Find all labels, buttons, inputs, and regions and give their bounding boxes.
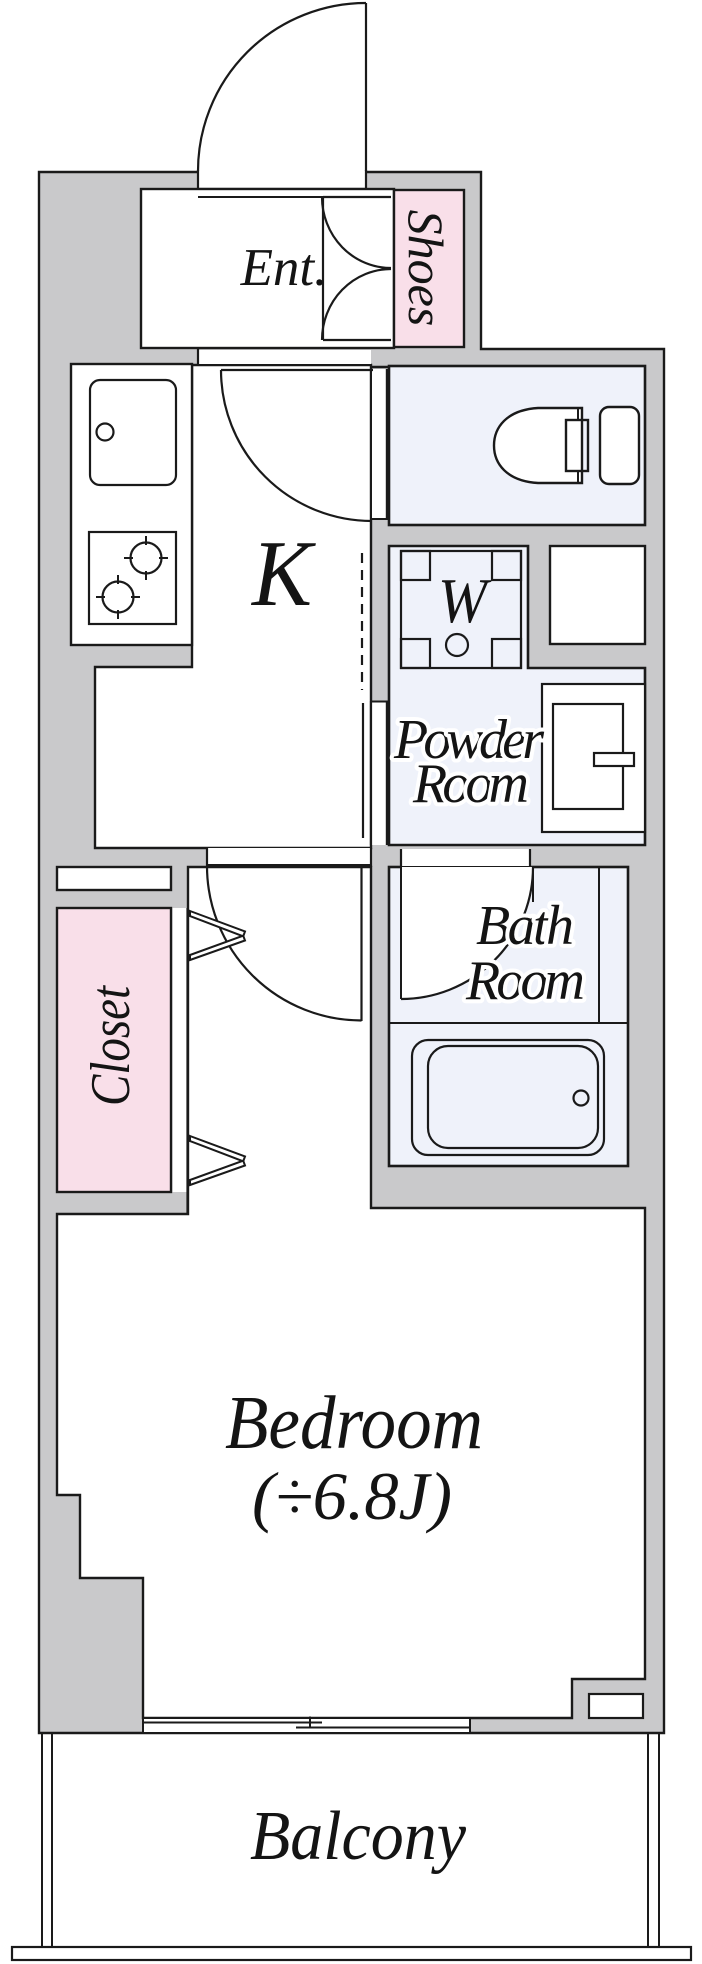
- svg-text:(÷6.8J): (÷6.8J): [252, 1458, 452, 1534]
- svg-text:Room: Room: [465, 950, 585, 1012]
- svg-text:Room: Room: [412, 753, 529, 815]
- svg-text:Balcony: Balcony: [250, 1798, 467, 1875]
- svg-text:Bedroom: Bedroom: [225, 1381, 483, 1465]
- svg-text:Bath: Bath: [476, 895, 574, 957]
- svg-text:Ent.: Ent.: [240, 239, 328, 297]
- svg-text:W: W: [438, 565, 492, 636]
- svg-text:Closet: Closet: [80, 985, 142, 1106]
- svg-text:Shoes: Shoes: [398, 210, 454, 327]
- svg-text:K: K: [250, 522, 316, 626]
